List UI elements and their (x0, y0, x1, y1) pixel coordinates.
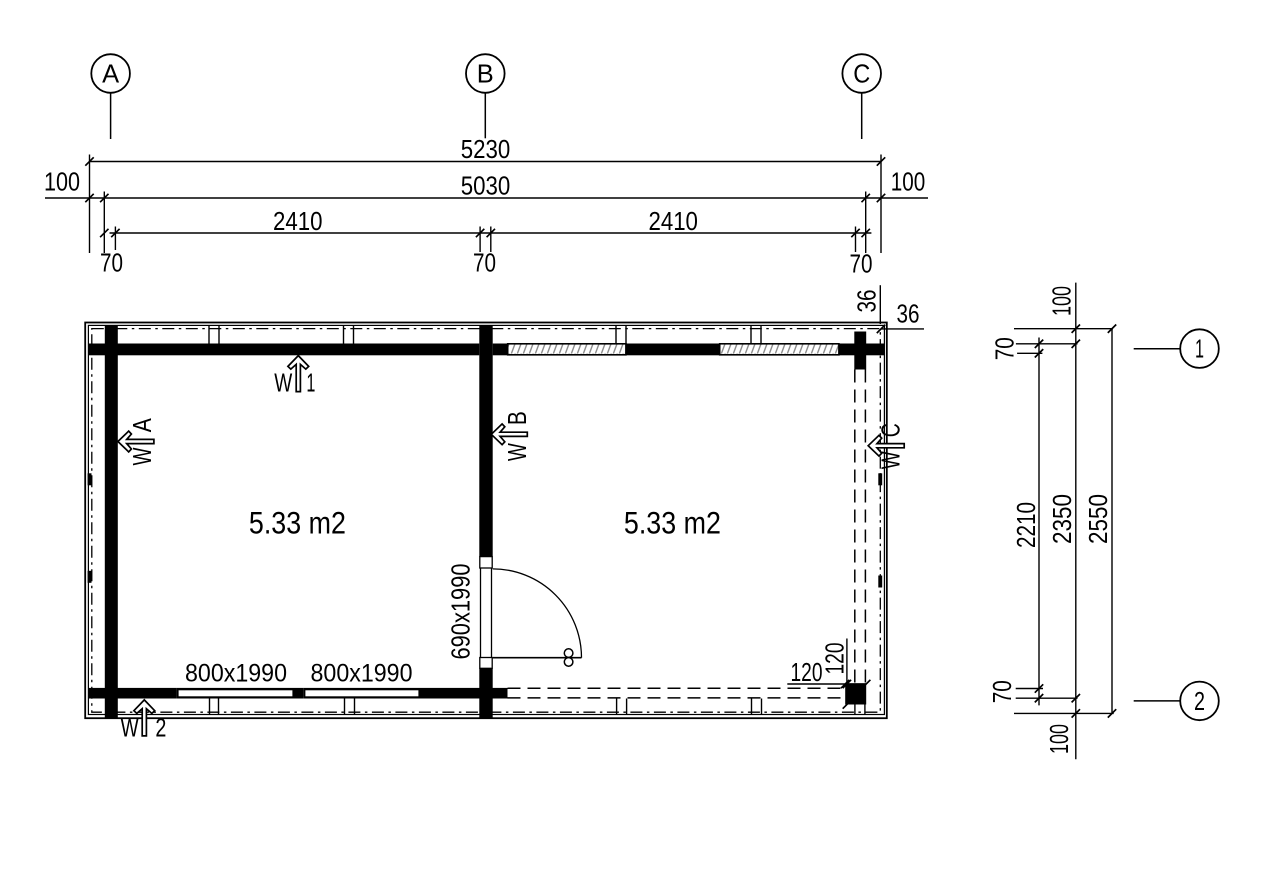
svg-text:70: 70 (850, 249, 873, 279)
svg-text:100: 100 (891, 167, 926, 197)
svg-text:800x1990: 800x1990 (311, 659, 413, 687)
svg-text:690x1990: 690x1990 (448, 564, 476, 660)
svg-text:W: W (121, 712, 139, 742)
svg-text:2: 2 (155, 712, 166, 742)
svg-text:120: 120 (820, 643, 850, 675)
svg-text:5.33 m2: 5.33 m2 (249, 504, 346, 540)
svg-text:1: 1 (1195, 334, 1204, 364)
svg-text:C: C (853, 59, 870, 89)
svg-text:A: A (102, 59, 120, 89)
svg-text:70: 70 (100, 248, 123, 278)
svg-text:C: C (876, 423, 906, 437)
svg-text:W: W (274, 368, 292, 398)
svg-text:5.33 m2: 5.33 m2 (624, 504, 721, 540)
svg-text:70: 70 (987, 680, 1017, 703)
svg-text:A: A (127, 418, 157, 433)
svg-text:5030: 5030 (461, 171, 511, 201)
svg-text:100: 100 (1047, 286, 1077, 316)
svg-text:120: 120 (791, 657, 823, 687)
svg-text:2410: 2410 (273, 206, 323, 236)
svg-text:100: 100 (44, 167, 80, 197)
svg-text:B: B (477, 59, 494, 89)
svg-text:36: 36 (852, 290, 882, 313)
svg-text:100: 100 (1044, 724, 1074, 754)
svg-text:70: 70 (473, 248, 496, 278)
svg-text:2350: 2350 (1047, 494, 1077, 544)
svg-text:2550: 2550 (1083, 494, 1113, 544)
svg-text:2: 2 (1194, 686, 1205, 716)
svg-text:2210: 2210 (1011, 502, 1041, 548)
svg-text:2410: 2410 (648, 206, 698, 236)
svg-text:W: W (502, 443, 532, 461)
svg-text:70: 70 (990, 337, 1020, 360)
svg-text:5230: 5230 (461, 134, 511, 164)
svg-text:1: 1 (306, 368, 315, 398)
svg-text:36: 36 (897, 299, 920, 329)
svg-text:B: B (502, 411, 532, 425)
svg-text:800x1990: 800x1990 (185, 659, 287, 687)
